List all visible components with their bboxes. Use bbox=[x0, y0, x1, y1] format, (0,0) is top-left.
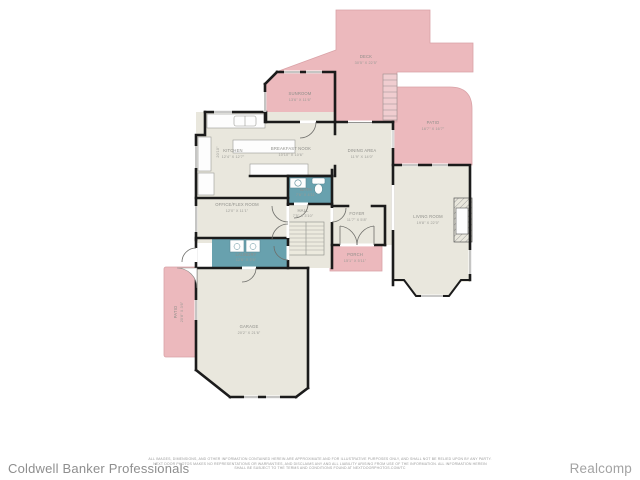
porch-area bbox=[330, 245, 382, 271]
svg-text:HALL: HALL bbox=[297, 208, 309, 213]
svg-text:BATH: BATH bbox=[300, 187, 311, 192]
svg-text:11'7" X 5'8": 11'7" X 5'8" bbox=[347, 218, 368, 222]
svg-text:DECK: DECK bbox=[360, 54, 372, 59]
svg-text:15'1" X 5'11": 15'1" X 5'11" bbox=[344, 259, 367, 263]
svg-text:20'10": 20'10" bbox=[216, 146, 220, 158]
staircase bbox=[288, 222, 324, 255]
svg-text:FOYER: FOYER bbox=[349, 211, 364, 216]
svg-text:19'8" X 22'0": 19'8" X 22'0" bbox=[417, 221, 440, 225]
svg-text:12'6" X 5'6": 12'6" X 5'6" bbox=[236, 258, 257, 262]
svg-text:KITCHEN: KITCHEN bbox=[223, 148, 242, 153]
deck-stairs bbox=[383, 74, 397, 120]
svg-text:SUNROOM: SUNROOM bbox=[289, 91, 312, 96]
svg-text:16'7" X 16'7": 16'7" X 16'7" bbox=[422, 127, 445, 131]
svg-text:12'4" X 12'7": 12'4" X 12'7" bbox=[222, 155, 245, 159]
refrigerator-icon bbox=[198, 173, 214, 195]
floor-plan-page: DECK 30'5" X 22'5" SUNROOM 13'6" X 11'6"… bbox=[0, 0, 640, 480]
svg-text:10'10" X 10'6": 10'10" X 10'6" bbox=[279, 153, 305, 157]
svg-text:7'5" X 3'10": 7'5" X 3'10" bbox=[293, 214, 314, 218]
svg-text:30'5" X 22'5": 30'5" X 22'5" bbox=[355, 61, 378, 65]
svg-text:7'6" X 4'11": 7'6" X 4'11" bbox=[296, 193, 317, 197]
svg-text:PATIO: PATIO bbox=[427, 120, 440, 125]
floor-plan-image: DECK 30'5" X 22'5" SUNROOM 13'6" X 11'6"… bbox=[0, 0, 640, 480]
patio-area bbox=[393, 87, 472, 165]
svg-text:LAUNDRY: LAUNDRY bbox=[236, 252, 257, 257]
svg-text:20'2" X 21'6": 20'2" X 21'6" bbox=[238, 331, 261, 335]
svg-text:12'0" X 11'1": 12'0" X 11'1" bbox=[226, 209, 249, 213]
svg-text:OFFICE/FLEX ROOM: OFFICE/FLEX ROOM bbox=[215, 202, 259, 207]
svg-text:20'8" X 3'6": 20'8" X 3'6" bbox=[180, 301, 184, 322]
svg-text:11'9" X 14'0": 11'9" X 14'0" bbox=[351, 155, 374, 159]
svg-text:PORCH: PORCH bbox=[347, 252, 363, 257]
realcomp-logo: Realcomp bbox=[570, 461, 632, 476]
svg-text:13'6" X 11'6": 13'6" X 11'6" bbox=[289, 98, 312, 102]
svg-text:DINING AREA: DINING AREA bbox=[348, 148, 377, 153]
svg-text:PATIO: PATIO bbox=[173, 305, 178, 318]
svg-text:GARAGE: GARAGE bbox=[240, 324, 259, 329]
brokerage-logo: Coldwell Banker Professionals bbox=[8, 461, 189, 476]
svg-text:LIVING ROOM: LIVING ROOM bbox=[413, 214, 443, 219]
svg-text:BREAKFAST NOOK: BREAKFAST NOOK bbox=[271, 146, 311, 151]
